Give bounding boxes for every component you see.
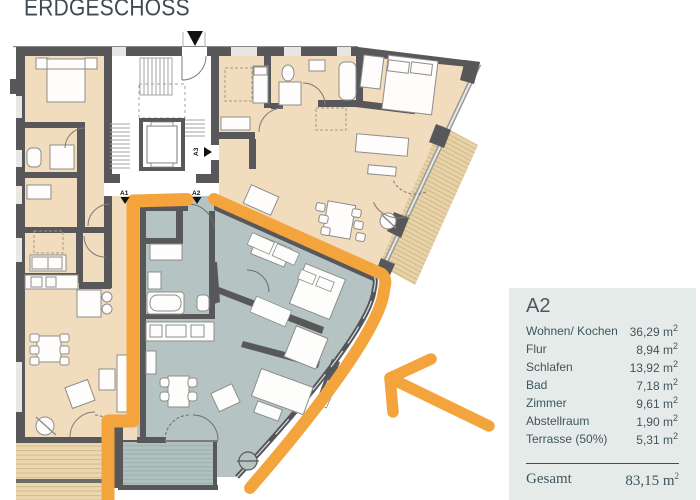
svg-text:A2: A2	[192, 190, 201, 197]
svg-text:A3: A3	[193, 147, 200, 156]
svg-text:A1: A1	[120, 190, 129, 197]
